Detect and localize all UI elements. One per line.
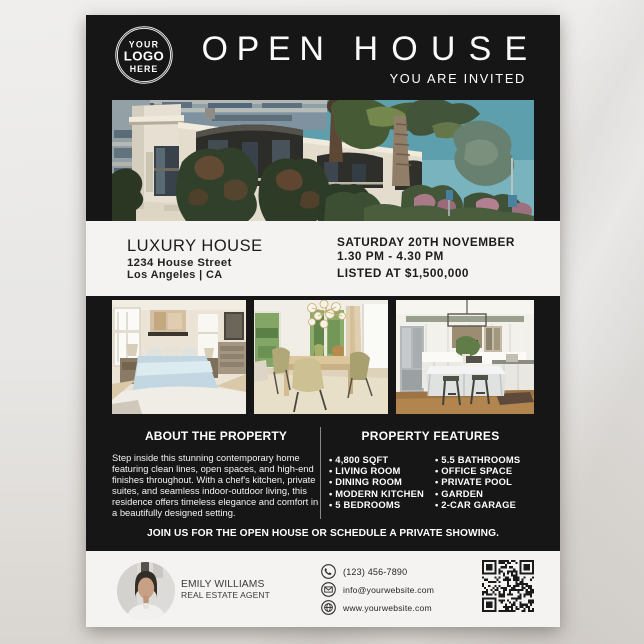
svg-text:LOGO: LOGO bbox=[124, 49, 164, 64]
